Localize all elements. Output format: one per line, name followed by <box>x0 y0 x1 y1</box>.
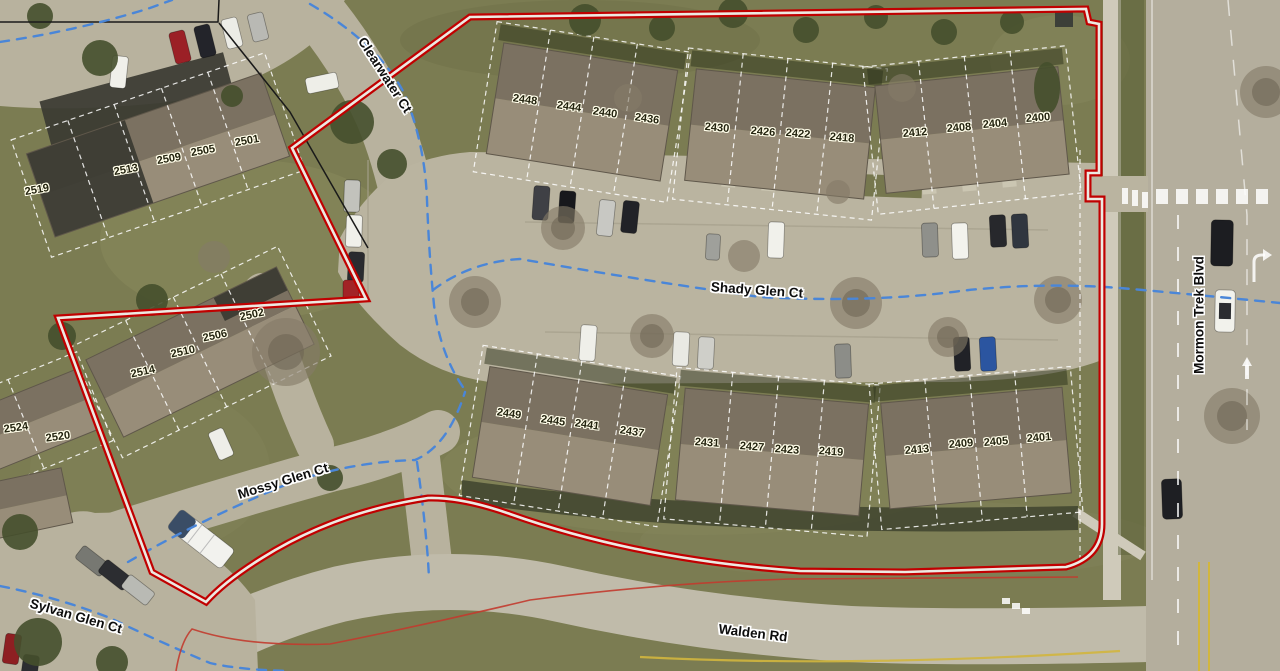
parcel-address-label: 2519 <box>24 182 50 198</box>
aerial-map[interactable]: 2519251325092505250125022506251025142524… <box>0 0 1280 671</box>
parcel-address-label: 2408 <box>946 121 971 135</box>
parcel-address-label: 2520 <box>45 429 71 444</box>
parcel-address-label: 2418 <box>829 131 854 145</box>
parcel-address-label: 2426 <box>750 125 775 139</box>
parcel-address-label: 2430 <box>704 121 729 135</box>
parcel-address-label: 2412 <box>902 126 927 140</box>
parcel-address-label: 2440 <box>592 105 618 120</box>
parcel-address-label: 2514 <box>130 364 156 381</box>
parcel-address-label: 2448 <box>512 92 538 107</box>
parcel-address-label: 2436 <box>634 111 660 126</box>
parcel-address-label: 2413 <box>904 443 929 457</box>
street-name-label: Walden Rd <box>718 621 789 644</box>
parcel-address-label: 2404 <box>982 117 1007 131</box>
map-labels-layer: 2519251325092505250125022506251025142524… <box>0 0 1280 671</box>
parcel-address-label: 2445 <box>540 413 566 428</box>
parcel-address-label: 2419 <box>818 445 843 459</box>
parcel-address-label: 2422 <box>785 127 810 141</box>
parcel-address-label: 2427 <box>739 440 764 454</box>
street-name-label: Clearwater Ct <box>355 34 415 115</box>
parcel-address-label: 2524 <box>3 420 29 435</box>
parcel-address-label: 2444 <box>556 99 582 114</box>
parcel-address-label: 2509 <box>156 151 182 167</box>
parcel-address-label: 2510 <box>170 344 196 361</box>
parcel-address-label: 2405 <box>983 435 1008 449</box>
street-name-label: Sylvan Glen Ct <box>28 596 124 637</box>
parcel-address-label: 2506 <box>202 328 228 345</box>
parcel-address-label: 2449 <box>496 406 522 421</box>
parcel-address-label: 2505 <box>190 143 216 159</box>
parcel-address-label: 2502 <box>239 307 265 324</box>
street-name-label: Mossy Glen Ct <box>236 460 330 502</box>
parcel-address-label: 2401 <box>1026 431 1051 445</box>
parcel-address-label: 2400 <box>1025 111 1050 125</box>
parcel-address-label: 2441 <box>574 417 600 432</box>
parcel-address-label: 2423 <box>774 443 799 457</box>
parcel-address-label: 2501 <box>234 133 260 149</box>
street-name-label: Shady Glen Ct <box>710 279 803 300</box>
street-name-label: Mormon Trek Blvd <box>1192 256 1207 374</box>
parcel-address-label: 2513 <box>113 162 139 178</box>
parcel-address-label: 2409 <box>948 437 973 451</box>
parcel-address-label: 2437 <box>619 424 645 439</box>
parcel-address-label: 2431 <box>694 436 719 450</box>
